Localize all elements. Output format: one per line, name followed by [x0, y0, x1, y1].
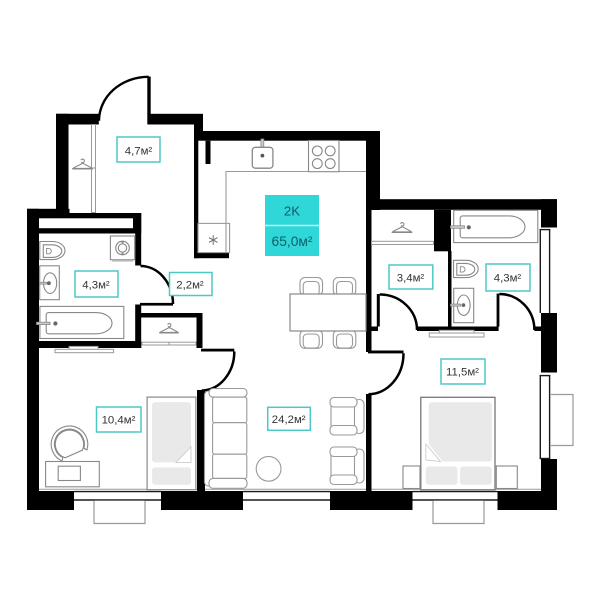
svg-text:3,4м²: 3,4м² — [397, 273, 425, 285]
svg-text:4,3м²: 4,3м² — [494, 273, 522, 285]
svg-text:10,4м²: 10,4м² — [102, 415, 136, 427]
svg-text:11,5м²: 11,5м² — [446, 367, 479, 379]
svg-text:2,2м²: 2,2м² — [176, 280, 204, 292]
svg-text:2K: 2K — [284, 204, 300, 219]
svg-text:4,7м²: 4,7м² — [125, 146, 153, 158]
svg-text:65,0м²: 65,0м² — [272, 234, 313, 249]
svg-text:4,3м²: 4,3м² — [82, 280, 110, 292]
svg-text:24,2м²: 24,2м² — [272, 414, 306, 426]
